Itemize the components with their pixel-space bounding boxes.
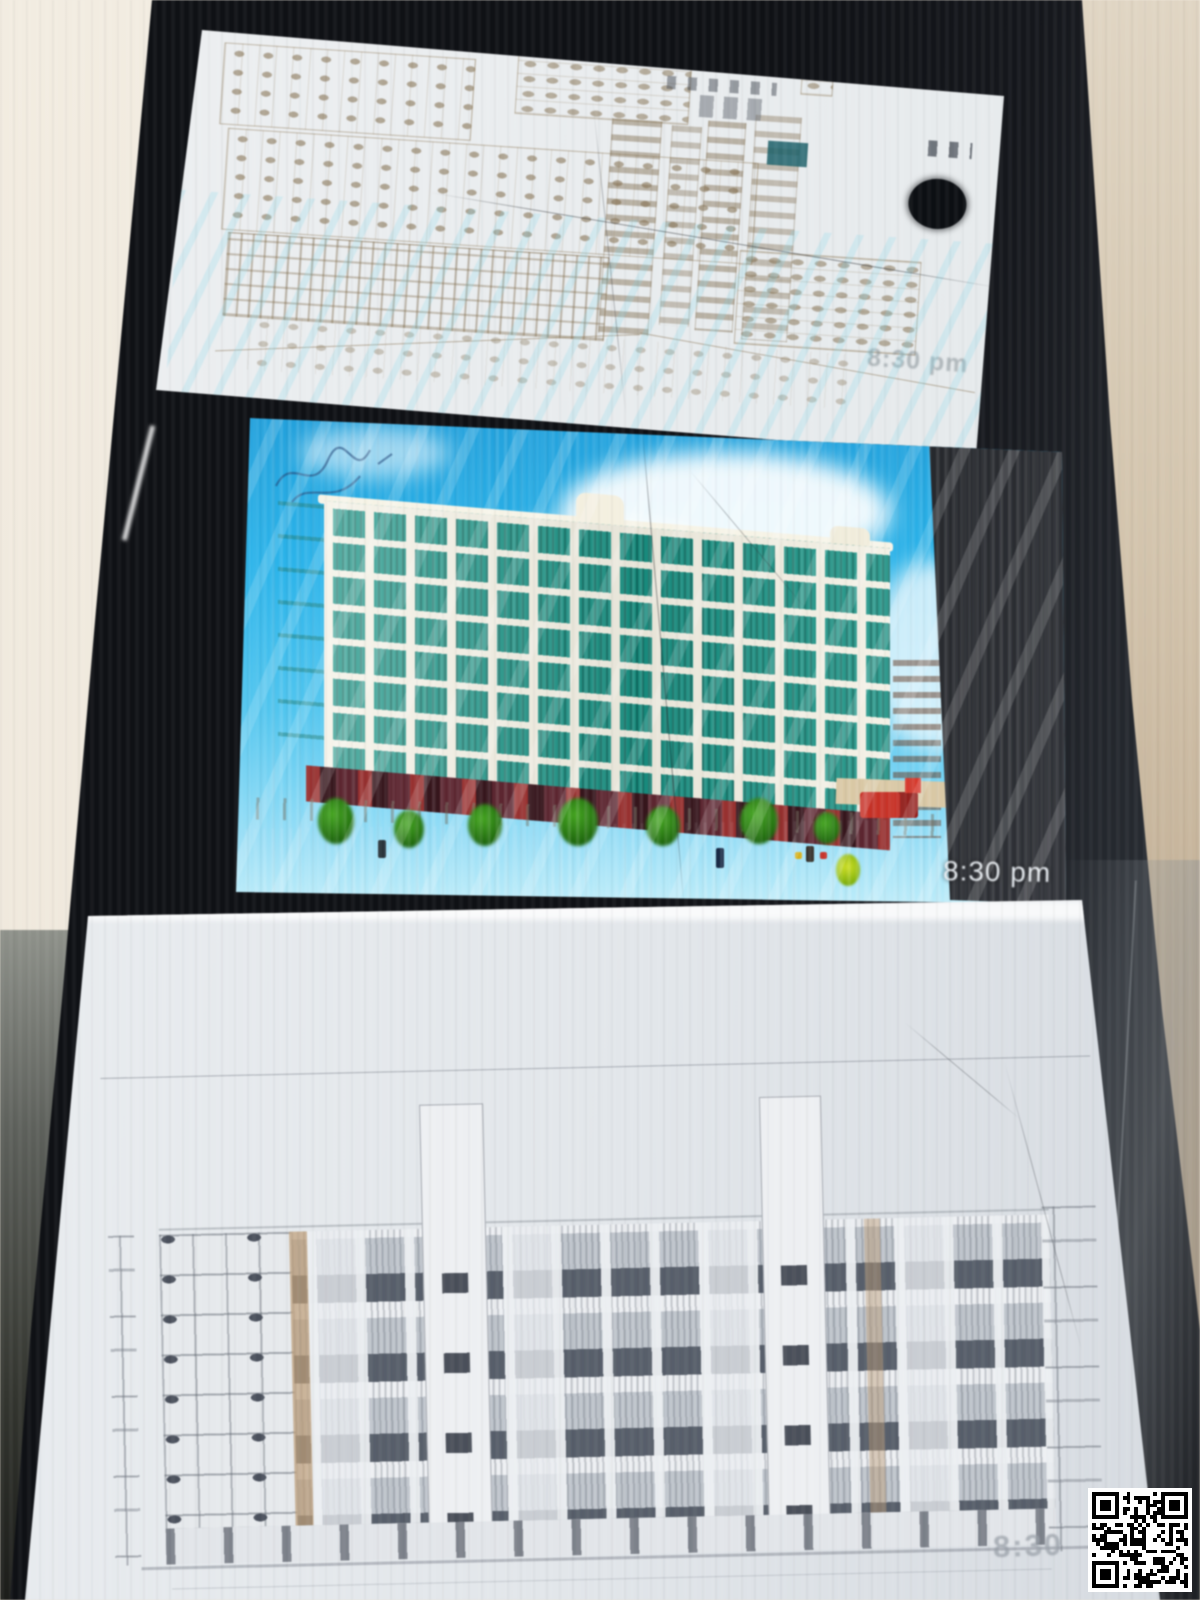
plan-gray-blobs [699,95,770,122]
qr-code [1088,1488,1192,1592]
elevation-tower-left [419,1103,493,1554]
elevation-tower-right [759,1096,831,1547]
plan-teal-chip [767,141,809,168]
base-line [172,1569,1052,1590]
timestamp-bottom: 8:30 [992,1527,1063,1565]
blur-layer: 8:30 pm [0,0,1200,1600]
photo-scene: 8:30 pm [0,0,1200,1600]
elevation-drawing [100,1037,1112,1600]
dimension-column-left [108,1235,141,1566]
plan-glyph-row [928,140,973,159]
faint-rule [100,1056,1090,1079]
plan-block [219,42,476,141]
ink-blot [907,177,968,231]
elevation-open-frame [159,1232,298,1529]
